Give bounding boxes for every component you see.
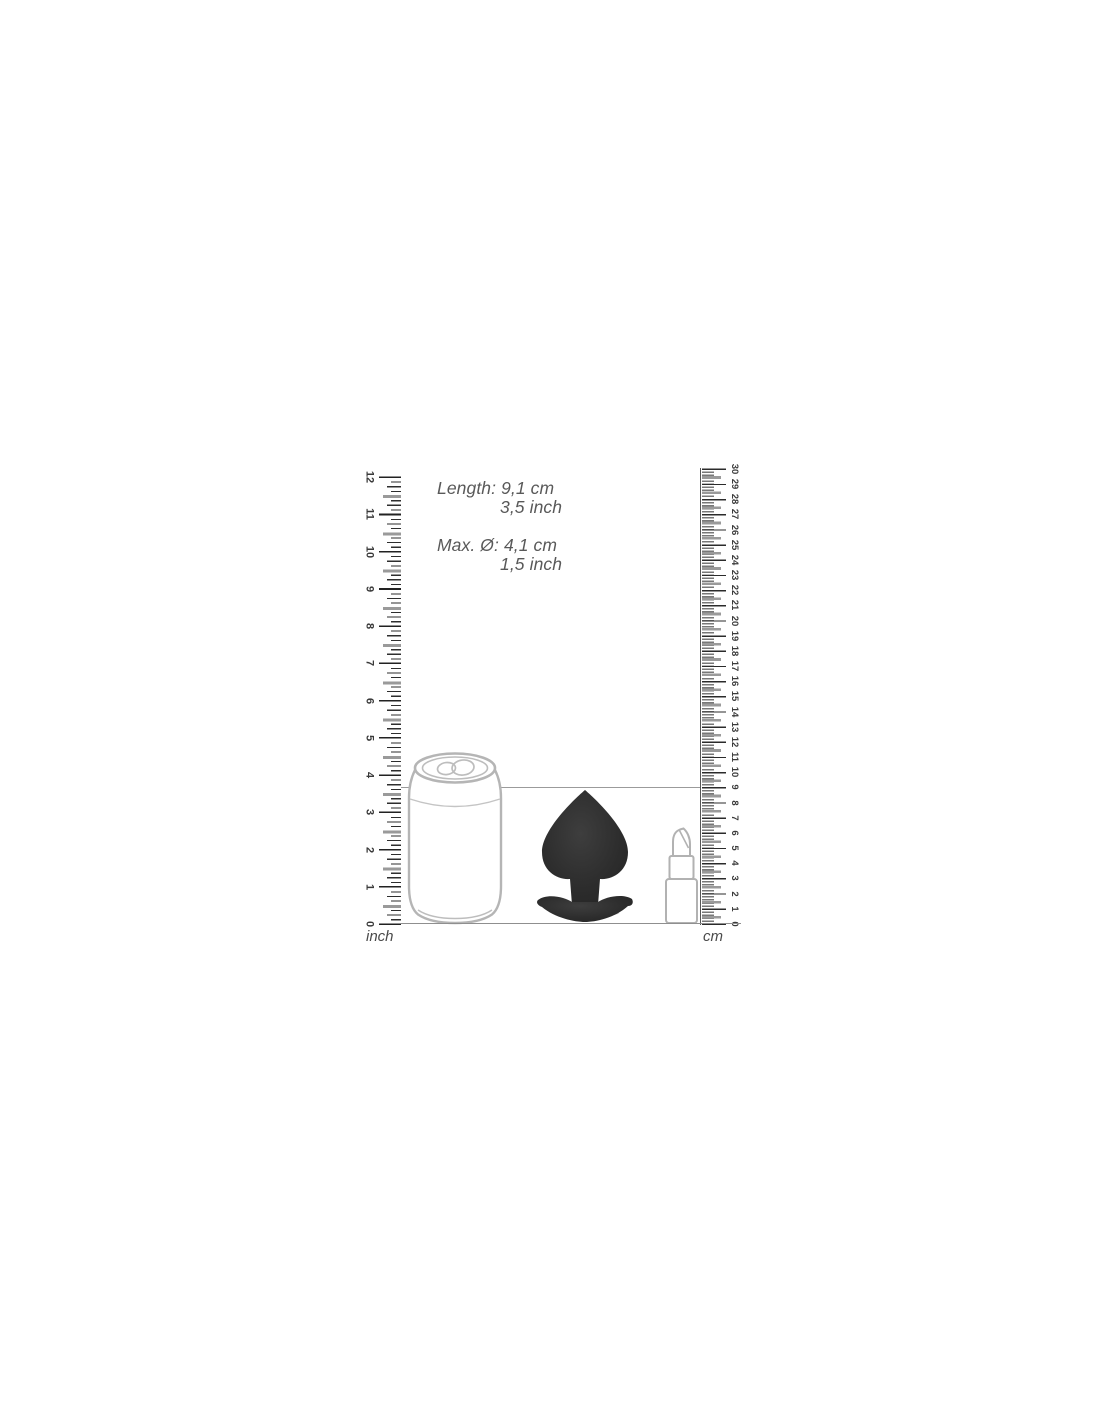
- inch-ruler-number: 5: [364, 735, 375, 741]
- inch-ruler-number: 6: [364, 697, 375, 703]
- plug-bulb-and-stem: [542, 790, 628, 905]
- length-measurement: Length:9,1 cm 3,5 inch: [437, 479, 562, 517]
- lipstick-illustration: [660, 824, 702, 926]
- diameter-label: Max. Ø:: [437, 535, 499, 555]
- length-imperial-value: 3,5 inch: [500, 498, 562, 517]
- inch-ruler-number: 11: [364, 508, 375, 520]
- cm-ruler-number: 20: [729, 615, 739, 626]
- cm-ruler-number: 6: [729, 830, 739, 835]
- inch-ruler: [379, 476, 401, 925]
- cm-ruler-number: 21: [729, 600, 739, 611]
- lipstick-collar: [670, 856, 694, 879]
- inch-ruler-number: 1: [364, 884, 375, 890]
- length-metric-value: 9,1 cm: [501, 478, 554, 498]
- cm-ruler-number: 4: [729, 861, 739, 866]
- cm-ruler-number: 1: [729, 906, 739, 911]
- cm-ruler-number: 14: [729, 706, 739, 717]
- cm-ruler-number: 28: [729, 494, 739, 505]
- cm-ruler-number: 5: [729, 845, 739, 850]
- inch-unit-label: inch: [366, 928, 394, 945]
- cm-unit-label: cm: [703, 928, 723, 945]
- cm-ruler-number: 16: [729, 676, 739, 687]
- cm-ruler-number: 8: [729, 800, 739, 805]
- inch-ruler-number: 9: [364, 586, 375, 592]
- lipstick-bullet: [673, 829, 690, 857]
- cm-ruler-number: 9: [729, 785, 739, 790]
- diameter-metric-value: 4,1 cm: [504, 535, 557, 555]
- cm-ruler-number: 3: [729, 876, 739, 881]
- inch-ruler-number: 0: [364, 921, 375, 927]
- inch-ruler-number: 8: [364, 623, 375, 629]
- cm-ruler-number: 7: [729, 815, 739, 820]
- inch-ruler-number: 7: [364, 660, 375, 666]
- cm-ruler-number: 13: [729, 721, 739, 732]
- inch-ruler-number: 3: [364, 809, 375, 815]
- cm-ruler-number: 24: [729, 555, 739, 566]
- length-label: Length:: [437, 478, 496, 498]
- measurement-text: Length:9,1 cm 3,5 inch Max. Ø:4,1 cm 1,5…: [437, 479, 562, 593]
- inch-ruler-number: 4: [364, 772, 375, 778]
- soda-can-illustration: [405, 748, 505, 928]
- cm-ruler-number: 2: [729, 891, 739, 896]
- butt-plug-illustration: [533, 783, 637, 925]
- cm-ruler-number: 18: [729, 646, 739, 657]
- diameter-measurement: Max. Ø:4,1 cm 1,5 inch: [437, 536, 562, 574]
- inch-ruler-whole-ticks: [379, 476, 401, 925]
- cm-ruler-number: 26: [729, 524, 739, 535]
- cm-ruler-cm-ticks: [702, 468, 726, 925]
- lipstick-tube: [666, 879, 697, 923]
- can-body: [409, 770, 501, 923]
- cm-ruler-number: 25: [729, 539, 739, 550]
- cm-ruler-number: 30: [729, 464, 739, 475]
- cm-ruler-number: 19: [729, 630, 739, 641]
- inch-ruler-number: 12: [364, 471, 375, 483]
- cm-ruler-number: 23: [729, 570, 739, 581]
- cm-ruler-number: 22: [729, 585, 739, 596]
- cm-ruler-number: 29: [729, 479, 739, 490]
- cm-ruler-number: 12: [729, 737, 739, 748]
- cm-ruler-number: 17: [729, 661, 739, 672]
- diameter-imperial-value: 1,5 inch: [500, 555, 562, 574]
- inch-ruler-number: 2: [364, 846, 375, 852]
- cm-ruler-number: 11: [729, 752, 739, 762]
- inch-ruler-number: 10: [364, 545, 375, 557]
- product-size-chart: Length:9,1 cm 3,5 inch Max. Ø:4,1 cm 1,5…: [0, 0, 1100, 1422]
- cm-ruler-number: 15: [729, 691, 739, 702]
- baseline: [379, 923, 741, 925]
- cm-ruler-number: 10: [729, 767, 739, 778]
- cm-ruler-number: 27: [729, 509, 739, 520]
